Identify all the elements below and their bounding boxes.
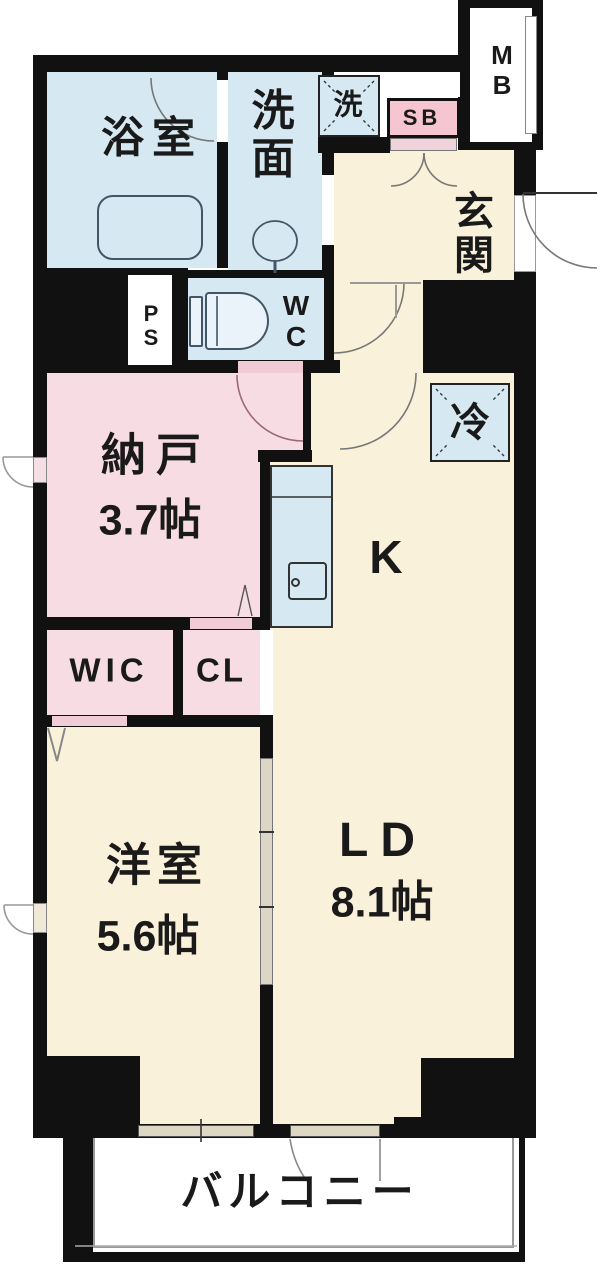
hallway: [334, 282, 423, 373]
label-pipe-space-1: P: [144, 303, 159, 325]
wall-wic-cl: [173, 628, 183, 715]
kitchen-counter: [270, 465, 333, 628]
kitchen-faucet: [291, 578, 300, 587]
wall-below-washroom: [185, 270, 334, 278]
shoe-box-strip: [390, 138, 457, 151]
balcony-left-bar: [63, 1125, 93, 1257]
wall-wc-right: [324, 278, 334, 367]
toilet-bowl: [205, 292, 269, 350]
toilet-tank: [189, 296, 203, 347]
balcony-bottom-bar: [63, 1252, 525, 1262]
bathroom-door-gap: [217, 80, 228, 142]
western-balcony-window: [138, 1125, 254, 1137]
western-side-window: [33, 903, 47, 933]
closet-door-strip: [190, 618, 252, 629]
label-toilet-1: W: [283, 292, 309, 320]
storage-vent-window: [33, 457, 47, 483]
storage-door-leaf: [303, 373, 311, 450]
wall-kitchen-left: [260, 453, 270, 630]
label-balcony: バルコニー: [180, 1171, 419, 1213]
washroom-door-gap: [322, 175, 334, 245]
label-storage: 納戸: [101, 433, 211, 478]
room-living-dining: [273, 630, 514, 1124]
sliding-partition: [260, 758, 273, 985]
wic-door-strip: [52, 716, 127, 726]
label-refrigerator: 冷: [450, 403, 490, 443]
label-washroom-2: 面: [252, 139, 295, 182]
label-wic: WIC: [69, 654, 148, 687]
bathtub: [97, 195, 203, 260]
wall-bottom-left-block: [40, 1056, 140, 1124]
label-meter-box-1: M: [491, 42, 513, 68]
label-western-room-size: 5.6帖: [97, 916, 200, 959]
wall-bottom: [33, 1124, 536, 1138]
wall-bottom-right-block: [421, 1058, 536, 1124]
label-storage-size: 3.7帖: [99, 500, 202, 543]
label-pipe-space-2: S: [144, 327, 159, 349]
label-washroom-1: 洗: [252, 91, 295, 134]
label-entrance-1: 玄: [454, 192, 494, 232]
balcony-right-bar: [519, 1138, 525, 1252]
partition-stub-bottom: [260, 985, 273, 1124]
label-meter-box-2: B: [493, 72, 512, 98]
niche-above-shoebox: [385, 72, 460, 97]
ld-balcony-window: [290, 1125, 380, 1137]
wall-right: [514, 150, 536, 1138]
label-kitchen: K: [369, 534, 402, 580]
room-storage: [47, 373, 260, 617]
wall-left: [33, 55, 47, 1125]
storage-door-strip: [238, 361, 303, 373]
meter-box-slot: [525, 16, 537, 134]
label-living-dining-size: 8.1帖: [331, 882, 434, 925]
wall-bottom-right-step: [394, 1117, 421, 1124]
wall-top: [33, 55, 472, 72]
label-western-room: 洋室: [106, 843, 208, 888]
wall-block-genkan: [423, 280, 514, 373]
wall-washer-bottom: [318, 137, 390, 153]
front-door-gap: [514, 195, 536, 272]
partition-stub-top: [260, 727, 273, 758]
label-toilet-2: C: [286, 323, 306, 351]
label-entrance-2: 関: [454, 236, 494, 276]
floor-plan: 浴室 洗 面 洗 SB M B 玄 関 W C P S 納戸 3.7帖 冷 K …: [0, 0, 600, 1265]
label-closet: CL: [196, 654, 246, 687]
label-washer-space: 洗: [333, 92, 362, 121]
label-living-dining: LD: [339, 817, 427, 865]
label-bathroom: 浴室: [101, 118, 203, 161]
label-shoe-box: SB: [403, 107, 442, 129]
